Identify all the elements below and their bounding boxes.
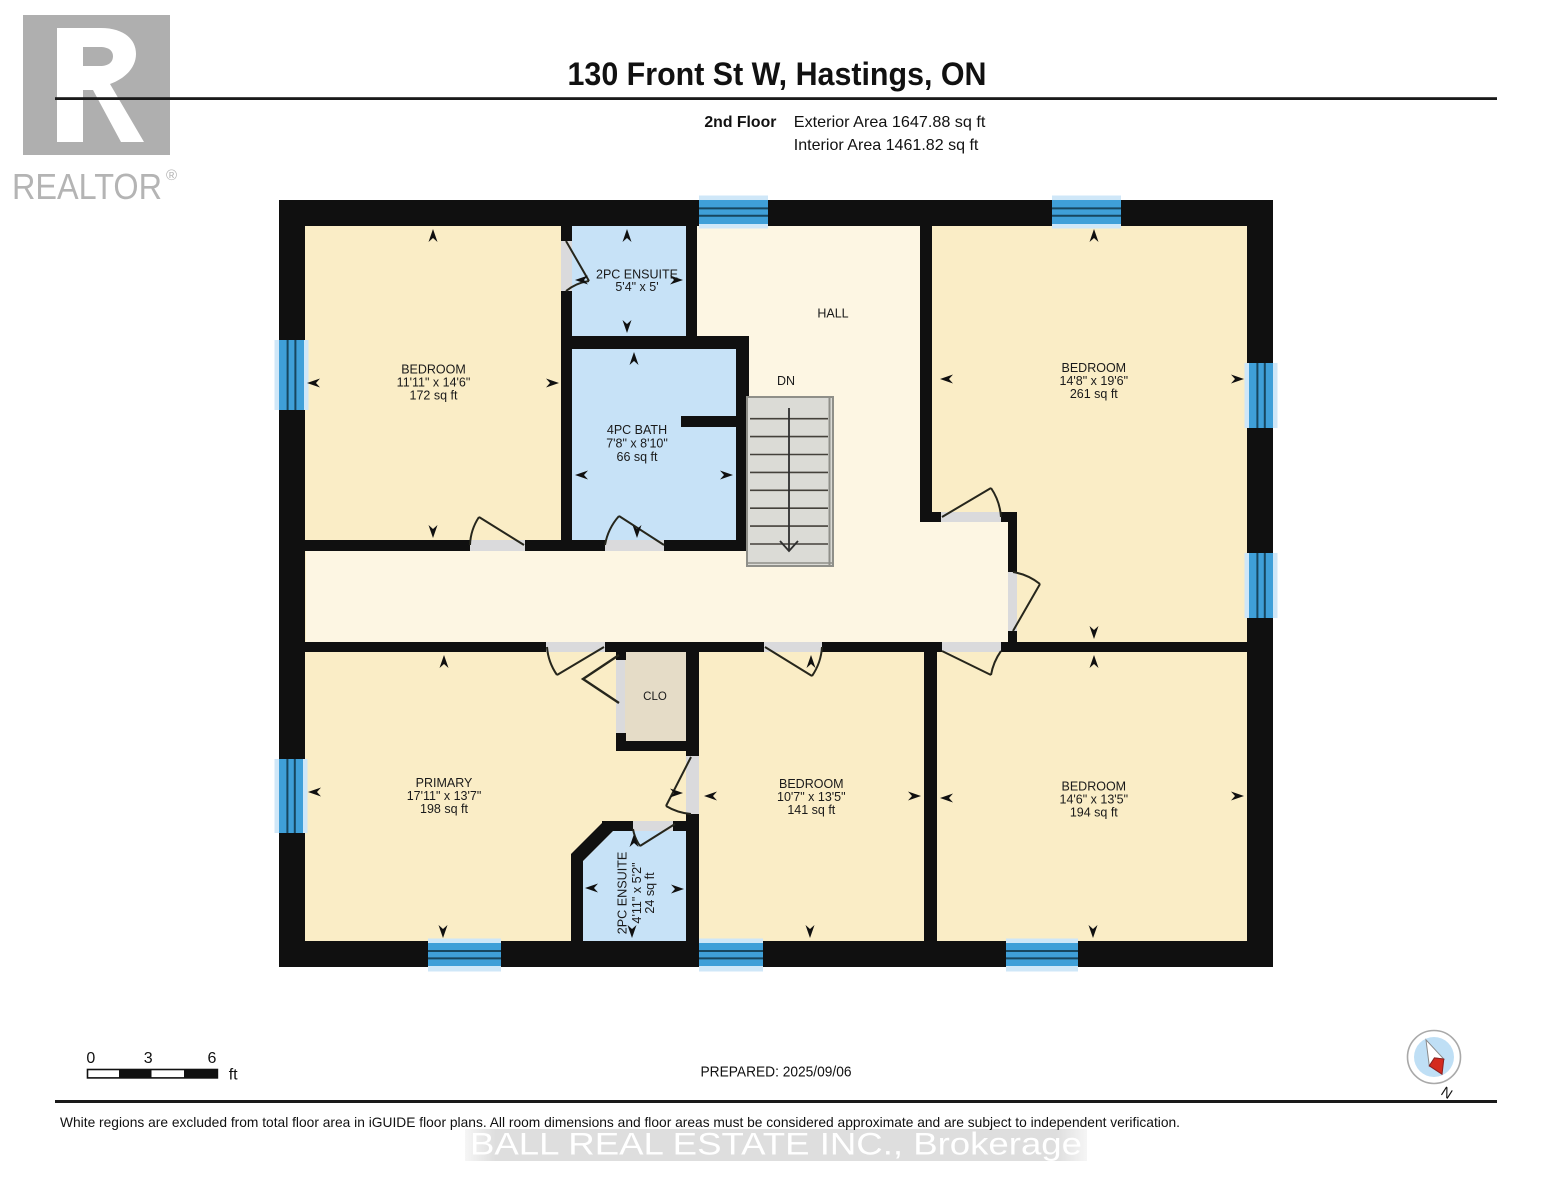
svg-text:194 sq ft: 194 sq ft xyxy=(1070,806,1118,820)
svg-text:17'11" x 13'7": 17'11" x 13'7" xyxy=(407,789,482,803)
svg-text:261 sq ft: 261 sq ft xyxy=(1070,387,1118,401)
svg-text:®: ® xyxy=(166,167,177,184)
svg-text:0: 0 xyxy=(86,1050,95,1067)
svg-text:5'4" x 5': 5'4" x 5' xyxy=(615,280,658,294)
svg-text:White regions are excluded fro: White regions are excluded from total fl… xyxy=(60,1114,1180,1130)
svg-text:BEDROOM: BEDROOM xyxy=(779,777,844,791)
svg-text:14'6" x 13'5": 14'6" x 13'5" xyxy=(1060,793,1129,807)
svg-text:HALL: HALL xyxy=(817,307,848,321)
svg-text:REALTOR: REALTOR xyxy=(12,166,162,207)
svg-text:Exterior Area 1647.88 sq ft: Exterior Area 1647.88 sq ft xyxy=(794,114,986,131)
svg-text:141 sq ft: 141 sq ft xyxy=(787,803,835,817)
svg-text:24 sq ft: 24 sq ft xyxy=(643,872,657,914)
svg-text:PRIMARY: PRIMARY xyxy=(416,776,473,790)
svg-text:7'8" x 8'10": 7'8" x 8'10" xyxy=(606,437,668,451)
svg-text:130 Front St W, Hastings, ON: 130 Front St W, Hastings, ON xyxy=(568,56,987,92)
svg-text:14'8" x 19'6": 14'8" x 19'6" xyxy=(1060,374,1129,388)
svg-text:3: 3 xyxy=(144,1050,153,1067)
svg-text:4PC BATH: 4PC BATH xyxy=(607,423,667,437)
svg-text:11'11" x 14'6": 11'11" x 14'6" xyxy=(397,376,471,390)
svg-text:DN: DN xyxy=(777,374,795,388)
svg-text:PREPARED: 2025/09/06: PREPARED: 2025/09/06 xyxy=(701,1064,852,1081)
svg-text:BEDROOM: BEDROOM xyxy=(401,363,466,377)
svg-text:6: 6 xyxy=(208,1050,217,1067)
svg-text:198 sq ft: 198 sq ft xyxy=(420,802,468,816)
svg-text:BEDROOM: BEDROOM xyxy=(1062,361,1127,375)
svg-text:BALL REAL ESTATE INC., Brokera: BALL REAL ESTATE INC., Brokerage xyxy=(470,1126,1082,1162)
svg-text:2PC ENSUITE: 2PC ENSUITE xyxy=(616,852,630,935)
svg-text:172 sq ft: 172 sq ft xyxy=(410,389,458,403)
svg-text:CLO: CLO xyxy=(643,691,667,703)
svg-text:ft: ft xyxy=(229,1067,238,1084)
svg-text:2nd Floor: 2nd Floor xyxy=(704,114,776,131)
svg-text:4'11" x 5'2": 4'11" x 5'2" xyxy=(630,862,644,923)
svg-text:Interior Area 1461.82 sq ft: Interior Area 1461.82 sq ft xyxy=(794,137,979,154)
svg-text:66 sq ft: 66 sq ft xyxy=(617,450,659,464)
svg-text:10'7" x 13'5": 10'7" x 13'5" xyxy=(777,790,846,804)
svg-text:BEDROOM: BEDROOM xyxy=(1062,780,1127,794)
